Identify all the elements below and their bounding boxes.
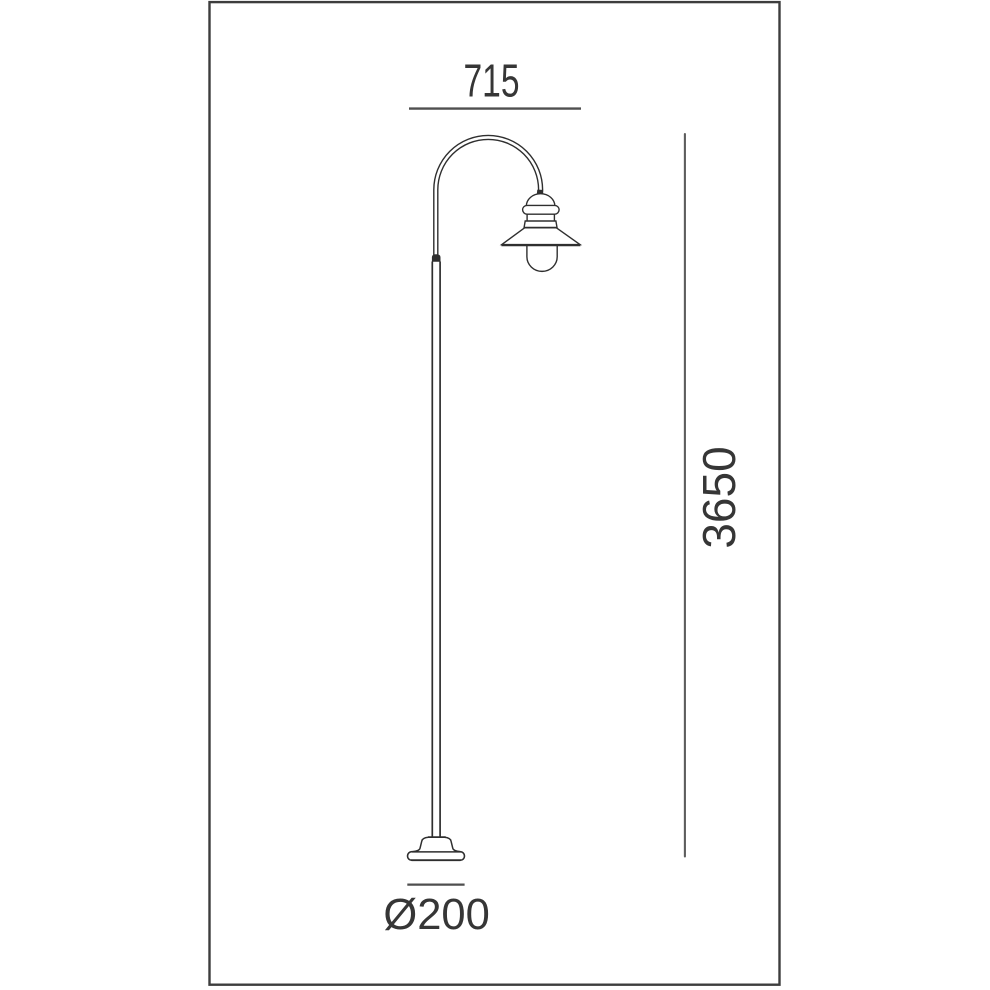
svg-text:3650: 3650 [693,446,745,548]
svg-text:715: 715 [464,55,520,107]
svg-text:Ø200: Ø200 [383,891,489,939]
